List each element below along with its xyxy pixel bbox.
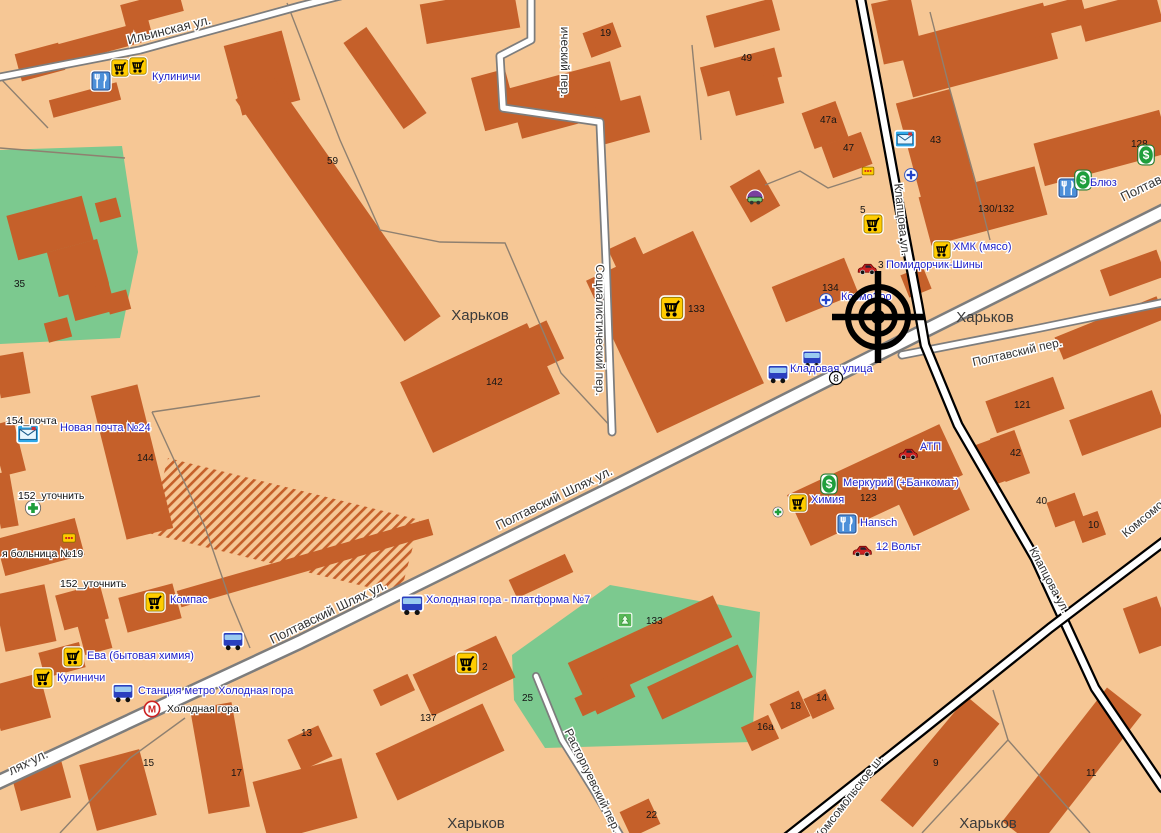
street-label: Комсомольское ш. [811,752,886,833]
street-label: ический пер. [558,27,572,98]
city-label: Харьков [447,815,505,832]
medgreen-icon[interactable] [25,500,40,515]
city-label: Харьков [451,307,509,324]
poi-label[interactable]: Меркурий (+Банкомат) [843,477,959,489]
building [253,758,358,833]
poi-label[interactable]: Кулиничи [152,71,200,83]
street-label: Социалистический пер. [593,264,607,396]
poi-label[interactable]: 152_уточнить [18,490,85,502]
building [1002,687,1141,833]
building [373,674,415,706]
route-badge-layer: 8 [830,372,843,385]
cart-icon[interactable] [789,494,807,512]
bus-icon[interactable] [113,684,133,702]
poi-label[interactable]: 152_уточнить [60,578,127,590]
building-number: 18 [790,701,802,712]
building-number: 14 [816,693,828,704]
cart-icon[interactable] [933,241,951,259]
boundary-line [152,396,260,412]
building-number: 35 [14,279,26,290]
tree-icon[interactable] [618,613,632,627]
dollar-icon[interactable] [1138,145,1155,165]
cart-icon[interactable] [863,214,883,234]
dollar-icon[interactable] [821,474,838,494]
carred-icon[interactable] [853,546,871,556]
boundary-line [765,171,862,188]
poi-label[interactable]: Станция метро Холодная гора [138,685,294,697]
cart-icon[interactable] [129,57,147,75]
building-number: 3 [878,260,884,271]
building [0,471,19,528]
building [509,554,574,598]
medgreen-icon[interactable] [773,507,783,517]
building-number: 10 [1088,520,1100,531]
building-number: 19 [600,28,612,39]
post-icon[interactable] [17,425,39,443]
building [772,258,859,322]
poi-label[interactable]: Ева (бытовая химия) [87,650,194,662]
street-label: Клапцова ул. [891,183,913,257]
building-number: 49 [741,53,753,64]
building [413,636,516,717]
building-number: 25 [522,693,534,704]
bus-icon[interactable] [401,596,423,616]
medblue-icon[interactable] [905,169,918,182]
shopsmall-icon[interactable] [862,167,874,175]
building-number: 142 [486,377,503,388]
building-number: 134 [822,283,839,294]
boundary-line [0,78,48,128]
building [0,584,56,652]
building-number: 11 [1086,768,1097,779]
building-number: 42 [1010,448,1022,459]
cart-icon[interactable] [145,592,165,612]
building-number: 121 [1014,400,1031,411]
street-label: Комсомольско [1119,477,1161,540]
cardome-icon[interactable] [747,190,764,205]
rest-icon[interactable] [91,71,111,91]
building-number: 144 [137,453,154,464]
building-number: 13 [301,728,313,739]
cart-icon[interactable] [63,647,83,667]
rest-icon[interactable] [837,514,857,534]
cart-icon[interactable] [456,652,478,674]
building [190,702,250,814]
city-label: Харьков [959,815,1017,832]
bus-icon[interactable] [768,365,788,383]
building-number: 15 [143,758,155,769]
poi-label[interactable]: АТП [920,441,941,453]
building [91,384,173,539]
poi-label[interactable]: Холодная гора [167,703,239,715]
medblue-icon[interactable] [820,294,833,307]
bus-icon[interactable] [223,632,243,650]
map-viewport[interactable]: $ М [0,0,1161,833]
poi-label[interactable]: 12 Вольт [876,541,921,553]
street-label: Клапцова ул. [1026,545,1073,616]
building-number: 133 [688,304,705,315]
building-number: 47 [843,143,855,154]
building-number: 22 [646,810,658,821]
building [376,704,505,801]
building-number: 40 [1036,496,1048,507]
building-number: 137 [420,713,437,724]
poi-label[interactable]: ХМК (мясо) [953,241,1012,253]
building [1077,0,1161,42]
carred-icon[interactable] [858,264,876,274]
metro-icon[interactable] [144,701,159,716]
building [1069,390,1161,456]
building [0,518,85,576]
poi-label[interactable]: Новая почта №24 [60,422,151,434]
building [1100,250,1161,297]
building [0,352,30,399]
building [1123,596,1161,653]
building [706,0,780,48]
building-number: 123 [860,493,877,504]
poi-label[interactable]: Помидорчик-Шины [886,259,983,271]
building-number: 9 [933,758,939,769]
building-number: 47а [820,115,837,126]
poi-label[interactable]: Холодная гора - платформа №7 [426,594,590,606]
building-number: 16а [757,722,774,733]
dollar-icon[interactable] [1075,170,1092,190]
route-badge-number: 8 [833,374,839,385]
poi-label[interactable]: я больница №19 [2,548,83,560]
shopsmall-icon[interactable] [63,534,76,542]
poi-label[interactable]: 154_почта [6,415,57,427]
poi-label[interactable]: Кулиничи [57,672,105,684]
building [343,27,426,129]
cart-icon[interactable] [660,296,683,319]
building-number: 130/132 [978,204,1015,215]
boundary-line [692,45,701,140]
cart-icon[interactable] [111,59,129,77]
poi-label[interactable]: Блюз [1090,177,1117,189]
building-number: 133 [646,616,663,627]
cart-icon[interactable] [33,668,53,688]
poi-label[interactable]: Химия [811,494,844,506]
map-canvas[interactable]: $ М [0,0,1161,833]
building [420,0,521,44]
building-number: 2 [482,662,488,673]
post-icon[interactable] [895,131,915,148]
city-label: Харьков [956,309,1014,326]
poi-label[interactable]: Hansch [860,517,897,529]
building-number: 59 [327,156,339,167]
street-label: Полтав [1118,172,1161,205]
poi-label[interactable]: Компас [170,594,208,606]
building-number: 43 [930,135,942,146]
building-number: 17 [231,768,243,779]
